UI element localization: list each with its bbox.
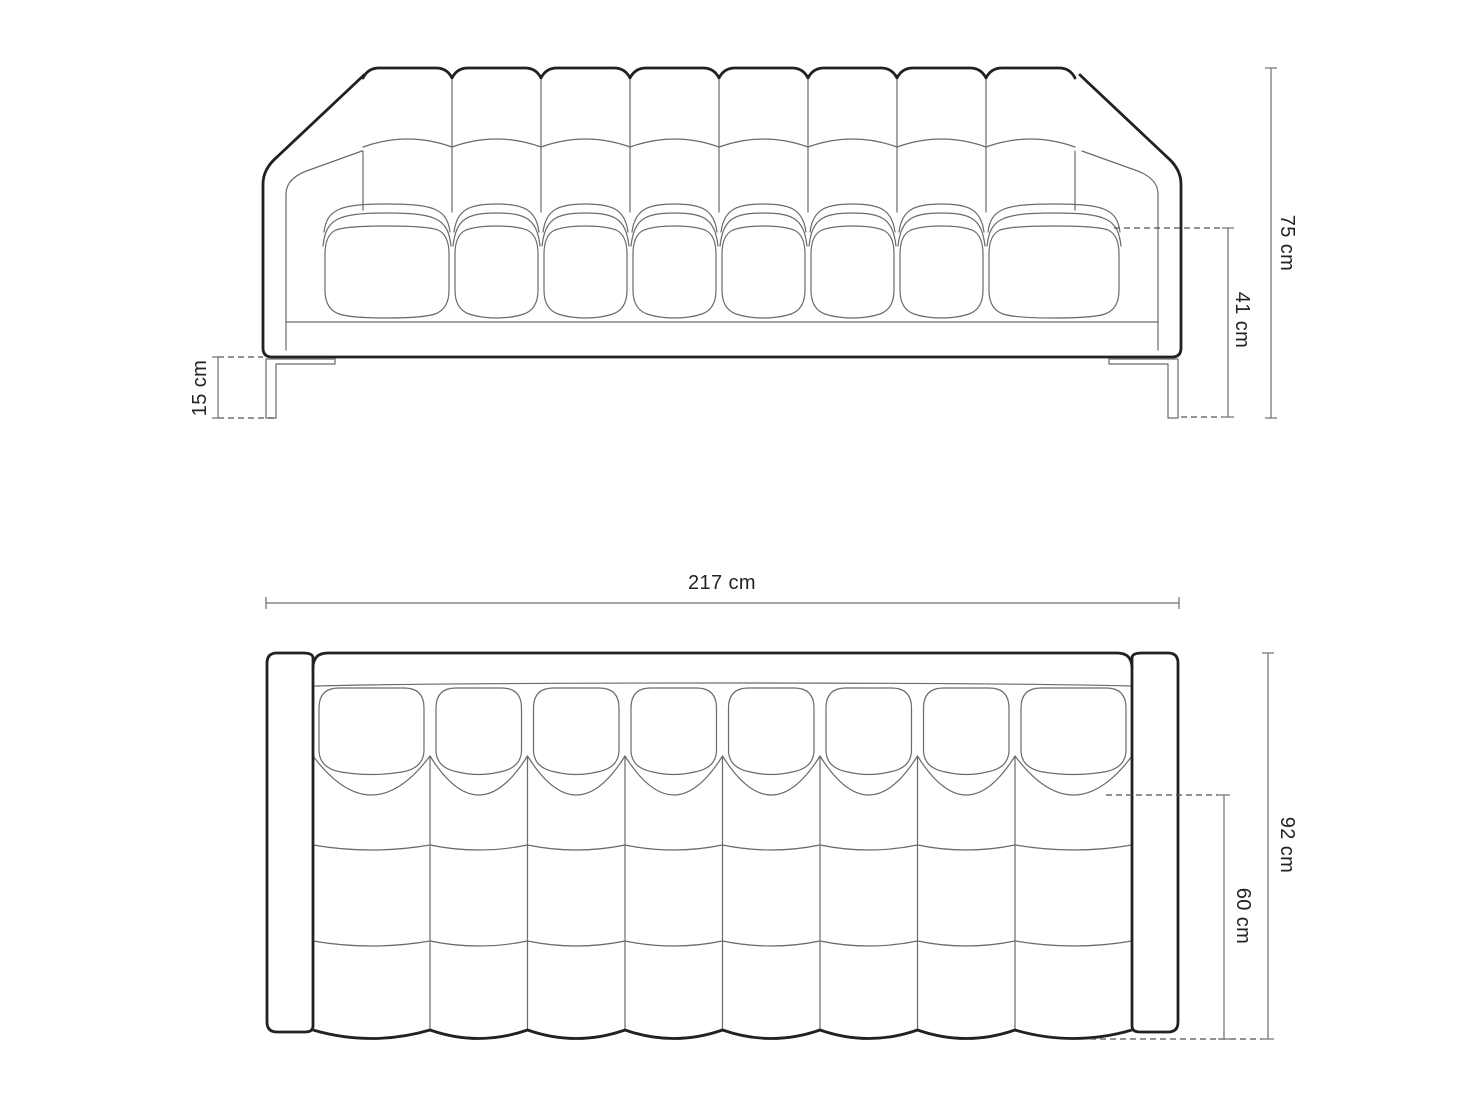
top-body-outline: [313, 653, 1132, 668]
top-left-arm: [267, 653, 313, 1032]
dim-label-seat-height: 41 cm: [1231, 292, 1253, 348]
top-view: 217 cm 92 cm 60 cm: [266, 572, 1298, 1039]
backrest-tuft-divisions: [363, 80, 1075, 212]
seat-cushion: [455, 226, 538, 318]
sofa-dimension-diagram: 75 cm 41 cm 15 cm 217 cm: [0, 0, 1475, 1106]
dim-leg-height: 15 cm: [189, 357, 274, 418]
backrest-rail-line: [315, 683, 1130, 686]
seat-cushion: [811, 226, 894, 318]
back-cushion: [729, 688, 815, 775]
back-cushion: [631, 688, 717, 775]
right-arm-inner: [1082, 151, 1158, 350]
dim-label-overall-width: 217 cm: [688, 572, 756, 594]
seat-cushion: [633, 226, 716, 318]
sofa-outline: [263, 75, 1181, 357]
top-view-sofa: [267, 653, 1178, 1039]
front-left-leg: [266, 359, 335, 418]
dim-seat-depth: 60 cm: [1090, 795, 1262, 1039]
diagram-canvas: 75 cm 41 cm 15 cm 217 cm: [0, 0, 1475, 1106]
backrest-bottom-bumps: [324, 204, 1120, 232]
dim-label-leg-height: 15 cm: [189, 360, 211, 416]
back-cushion: [319, 688, 424, 775]
back-cushion: [1021, 688, 1126, 775]
dim-overall-height: 75 cm: [1265, 68, 1298, 418]
seat-cushion: [989, 226, 1119, 318]
dim-overall-width: 217 cm: [266, 572, 1179, 609]
seat-cushion: [325, 226, 449, 318]
seat-cushion: [722, 226, 805, 318]
dim-overall-depth: 92 cm: [1262, 653, 1298, 1039]
back-cushion: [436, 688, 522, 775]
top-front-edge: [313, 1030, 1132, 1039]
front-view: 75 cm 41 cm 15 cm: [189, 68, 1298, 418]
back-cushion: [534, 688, 620, 775]
back-cushion: [826, 688, 912, 775]
backrest-humps: [363, 68, 1075, 78]
left-arm-inner: [286, 151, 362, 350]
back-cushion: [924, 688, 1010, 775]
dim-label-overall-height: 75 cm: [1276, 215, 1298, 271]
front-right-leg: [1109, 359, 1178, 418]
seat-cushion: [900, 226, 983, 318]
top-right-arm: [1132, 653, 1178, 1032]
dim-label-seat-depth: 60 cm: [1232, 888, 1254, 944]
dim-label-overall-depth: 92 cm: [1276, 817, 1298, 873]
top-grid-divisions: [430, 756, 1015, 1030]
seat-cushion: [544, 226, 627, 318]
front-view-sofa: [263, 68, 1181, 418]
